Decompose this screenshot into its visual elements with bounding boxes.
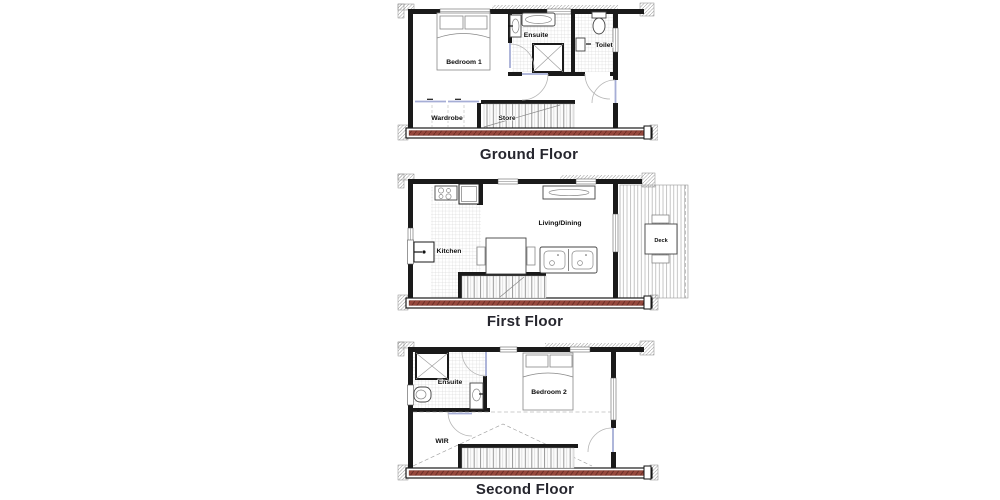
vanity-symbol <box>470 383 483 409</box>
second-floor-title: Second Floor <box>395 481 655 498</box>
basin-symbol <box>508 15 521 37</box>
ground-floor-title: Ground Floor <box>399 146 659 163</box>
room-label-deck: Deck <box>654 238 668 244</box>
fridge-symbol <box>459 184 479 204</box>
first-floor-plan: Kitchen Living/Dining Deck <box>396 172 696 312</box>
second-floor-plan: Ensuite Bedroom 2 WIR <box>396 340 660 482</box>
room-label-bedroom1: Bedroom 1 <box>446 59 482 66</box>
ground-floor-plan: Bedroom 1 Ensuite Toilet Wardrobe Store <box>396 2 658 145</box>
room-label-kitchen: Kitchen <box>437 248 462 255</box>
first-floor-title: First Floor <box>395 313 655 330</box>
room-label-wardrobe: Wardrobe <box>431 115 463 122</box>
stairs <box>458 444 578 468</box>
bed-symbol <box>523 353 573 410</box>
cooktop-symbol <box>433 184 459 202</box>
sliding-wardrobe-doors <box>415 99 479 101</box>
floor-plans-page: Bedroom 1 Ensuite Toilet Wardrobe Store … <box>0 0 1000 500</box>
toilet-symbol <box>592 12 606 34</box>
room-label-toilet: Toilet <box>595 42 613 49</box>
stairs <box>458 272 546 298</box>
bottom-plate-band <box>406 126 652 139</box>
shower-symbol <box>533 44 563 72</box>
shower-symbol <box>416 353 448 379</box>
room-label-ensuite2: Ensuite <box>438 379 463 386</box>
room-label-bedroom2: Bedroom 2 <box>531 389 567 396</box>
room-label-store: Store <box>498 115 516 122</box>
room-label-ensuite: Ensuite <box>524 32 549 39</box>
sink-symbol <box>408 240 435 264</box>
sofa-symbol <box>540 247 597 273</box>
bath-symbol <box>522 13 555 26</box>
room-label-wir: WIR <box>435 438 448 445</box>
sideboard-symbol <box>543 186 595 199</box>
room-label-living: Living/Dining <box>538 220 581 227</box>
dining-table-symbol <box>477 238 535 274</box>
